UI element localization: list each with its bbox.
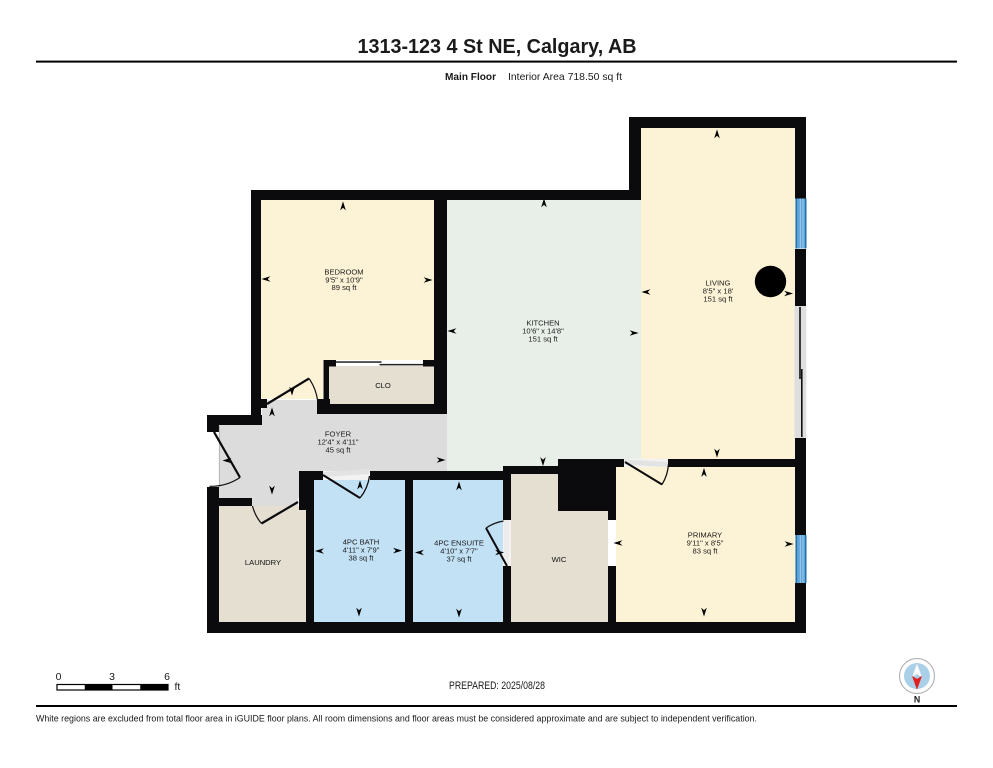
svg-text:CLO: CLO	[375, 381, 391, 390]
svg-text:LAUNDRY: LAUNDRY	[245, 558, 281, 567]
svg-text:White regions are excluded fro: White regions are excluded from total fl…	[36, 714, 757, 724]
svg-text:N: N	[914, 695, 920, 705]
svg-text:83 sq ft: 83 sq ft	[693, 547, 719, 556]
svg-text:45 sq ft: 45 sq ft	[326, 446, 352, 455]
svg-text:6: 6	[164, 671, 170, 683]
svg-text:PREPARED: 2025/08/28: PREPARED: 2025/08/28	[449, 680, 545, 692]
svg-text:89 sq ft: 89 sq ft	[332, 283, 358, 292]
svg-text:3: 3	[109, 671, 115, 683]
svg-text:0: 0	[56, 671, 62, 683]
svg-text:151 sq ft: 151 sq ft	[528, 335, 558, 344]
svg-text:151 sq ft: 151 sq ft	[703, 295, 733, 304]
svg-text:WIC: WIC	[552, 555, 567, 564]
svg-text:37 sq ft: 37 sq ft	[447, 555, 473, 564]
svg-text:ft: ft	[175, 681, 181, 693]
svg-text:1313-123 4 St NE, Calgary, AB: 1313-123 4 St NE, Calgary, AB	[358, 36, 637, 58]
svg-text:Main Floor: Main Floor	[445, 72, 496, 83]
svg-text:Interior Area 718.50 sq ft: Interior Area 718.50 sq ft	[508, 72, 622, 83]
svg-text:38 sq ft: 38 sq ft	[349, 554, 375, 563]
